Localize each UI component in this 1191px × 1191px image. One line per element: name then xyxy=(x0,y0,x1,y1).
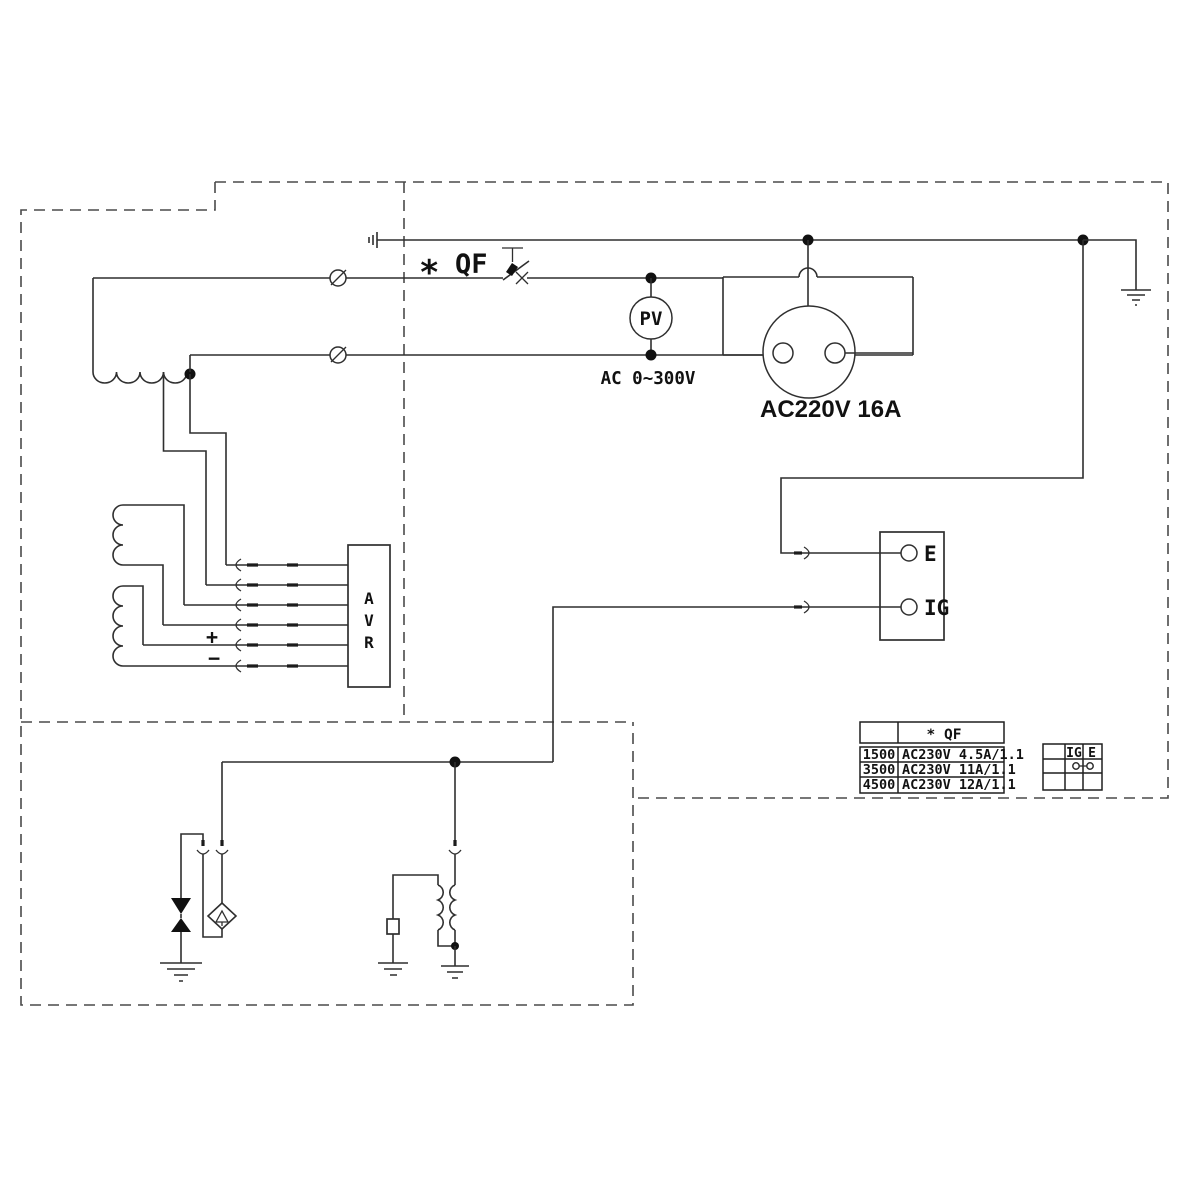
avr-letter-a: A xyxy=(364,589,374,608)
wire-connector xyxy=(449,850,461,854)
breaker-marker-label: * xyxy=(419,253,439,293)
qf-table-model: 3500 xyxy=(863,762,896,778)
ignition-section xyxy=(160,757,553,982)
stop-switch-module xyxy=(160,762,236,981)
pv-voltmeter: PV AC 0~300V xyxy=(601,273,696,390)
socket-label: AC220V 16A xyxy=(760,396,901,423)
terminal-ig-label: IG xyxy=(924,596,949,620)
qf-table-header: * QF xyxy=(927,727,962,743)
wiring-diagram-page: * QF PV AC 0~300V AC220V 16A xyxy=(0,0,1191,1191)
avr-letter-r: R xyxy=(364,633,374,652)
qf-table-spec: AC230V 4.5A/1.1 xyxy=(902,747,1024,763)
avr-minus-label: − xyxy=(208,646,220,670)
breaker-blade xyxy=(503,261,529,280)
exciter-coil-upper xyxy=(113,505,123,565)
switch-state-table: IG E xyxy=(1043,744,1102,790)
qf-spec-table: * QF 1500 AC230V 4.5A/1.1 3500 AC230V 11… xyxy=(860,722,1024,793)
generator-wiring-diagram: * QF PV AC 0~300V AC220V 16A xyxy=(0,0,1191,1191)
stator-coil xyxy=(93,372,187,383)
ground-symbol-coil xyxy=(441,966,469,978)
breaker-label: QF xyxy=(455,249,488,280)
terminal-ig xyxy=(901,599,917,615)
junction-dot xyxy=(646,350,657,361)
socket-pin-left xyxy=(773,343,793,363)
voltmeter-range-label: AC 0~300V xyxy=(601,369,696,389)
coil-primary xyxy=(438,885,443,930)
qf-table-model: 4500 xyxy=(863,777,896,793)
circuit-breaker-qf: * QF xyxy=(93,248,723,293)
surge-diode-down xyxy=(171,898,191,914)
qf-table-model: 1500 xyxy=(863,747,896,763)
switch-table-e-label: E xyxy=(1088,746,1096,761)
switch-contact xyxy=(1073,763,1079,769)
breaker-release xyxy=(502,248,523,262)
ground-symbol-stop-switch xyxy=(160,963,202,981)
wire-connector xyxy=(216,850,228,854)
switch-table-ig-label: IG xyxy=(1066,746,1082,761)
coil-secondary xyxy=(450,885,455,930)
terminal-e-label: E xyxy=(924,542,937,566)
surge-diode-up xyxy=(171,918,191,932)
outer-boundary-right xyxy=(215,182,1168,798)
ignition-coil xyxy=(378,762,469,978)
voltmeter-label: PV xyxy=(640,308,663,330)
dashed-boundary xyxy=(21,182,1168,1005)
wire-connector xyxy=(197,850,209,854)
terminal-block: E IG xyxy=(880,532,949,640)
resistor xyxy=(387,919,399,934)
ground-symbol-resistor xyxy=(378,963,408,975)
exciter-coil-lower xyxy=(113,586,123,666)
power-socket: AC220V 16A xyxy=(723,240,913,423)
module-glyph xyxy=(216,911,228,926)
socket-pin-right xyxy=(825,343,845,363)
output-line-2 xyxy=(190,347,773,363)
terminal-e xyxy=(901,545,917,561)
ground-symbol-top-left xyxy=(369,232,377,248)
avr-letter-v: V xyxy=(364,611,374,630)
breaker-contact xyxy=(506,263,518,276)
exciter-windings xyxy=(113,505,184,666)
qf-table-spec: AC230V 11A/1.1 xyxy=(902,762,1016,778)
avr-lead-connectors xyxy=(236,559,241,672)
qf-table-spec: AC230V 12A/1.1 xyxy=(902,777,1016,793)
switch-contact xyxy=(1087,763,1093,769)
ground-symbol-top-right xyxy=(1121,290,1151,305)
breaker-cross xyxy=(516,272,528,284)
